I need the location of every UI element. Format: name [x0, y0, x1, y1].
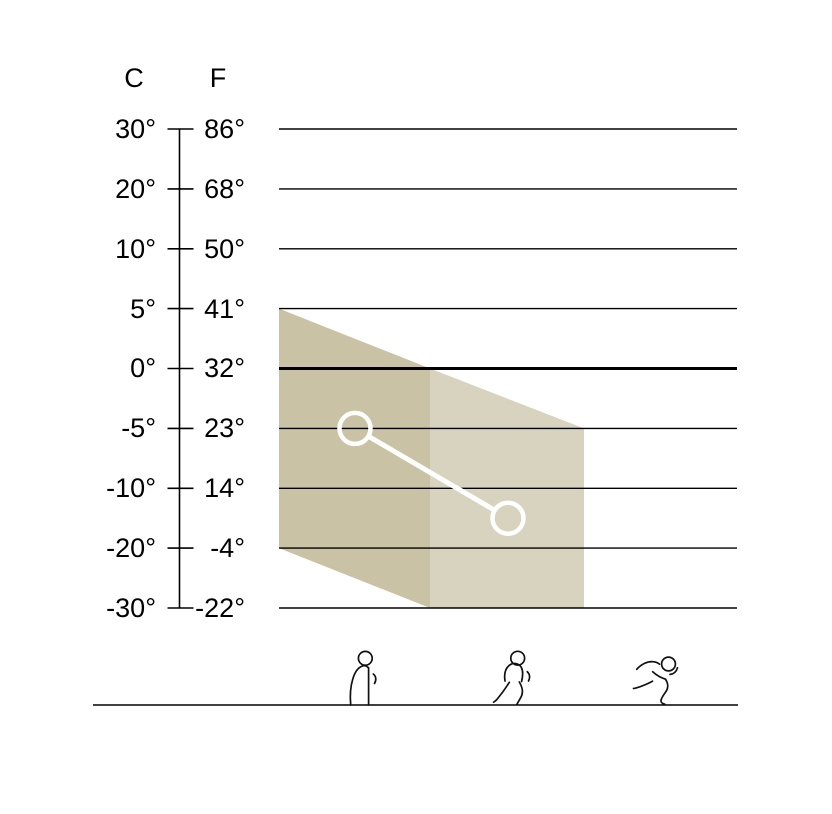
person-body-stroke — [661, 679, 668, 704]
person-head — [358, 651, 372, 665]
celsius-tick-label: 0° — [56, 354, 156, 382]
fahrenheit-tick-label: 86° — [145, 115, 245, 143]
person-walking-icon — [494, 651, 530, 704]
celsius-tick-label: 10° — [56, 235, 156, 263]
fahrenheit-tick-label: 23° — [145, 414, 245, 442]
person-standing-icon — [350, 651, 375, 705]
person-body-stroke — [350, 666, 368, 705]
fahrenheit-tick-label: -22° — [145, 594, 245, 622]
person-body-stroke — [517, 682, 523, 705]
temperature-activity-chart: C F 30° 86° 20° 68° 10° 50° 5° 41° 0° 32… — [0, 0, 832, 814]
fahrenheit-tick-label: 41° — [145, 295, 245, 323]
celsius-tick-label: -10° — [56, 474, 156, 502]
celsius-tick-label: 30° — [56, 115, 156, 143]
celsius-tick-label: 20° — [56, 175, 156, 203]
fahrenheit-tick-label: -4° — [145, 534, 245, 562]
person-head — [662, 657, 676, 671]
person-body-stroke — [653, 672, 666, 680]
person-body-stroke — [494, 682, 510, 702]
celsius-tick-label: -30° — [56, 594, 156, 622]
fahrenheit-tick-label: 50° — [145, 235, 245, 263]
person-running-icon — [634, 657, 678, 704]
celsius-tick-label: -5° — [56, 414, 156, 442]
person-body-stroke — [373, 674, 375, 684]
celsius-tick-label: -20° — [56, 534, 156, 562]
person-body-stroke — [505, 663, 523, 681]
person-body-stroke — [634, 681, 653, 688]
fahrenheit-tick-label: 14° — [145, 474, 245, 502]
fahrenheit-tick-label: 32° — [145, 354, 245, 382]
person-body-stroke — [527, 672, 529, 681]
person-body-stroke — [637, 662, 660, 670]
fahrenheit-scale-header: F — [188, 64, 248, 92]
fahrenheit-tick-label: 68° — [145, 175, 245, 203]
celsius-scale-header: C — [104, 64, 164, 92]
celsius-tick-label: 5° — [56, 295, 156, 323]
